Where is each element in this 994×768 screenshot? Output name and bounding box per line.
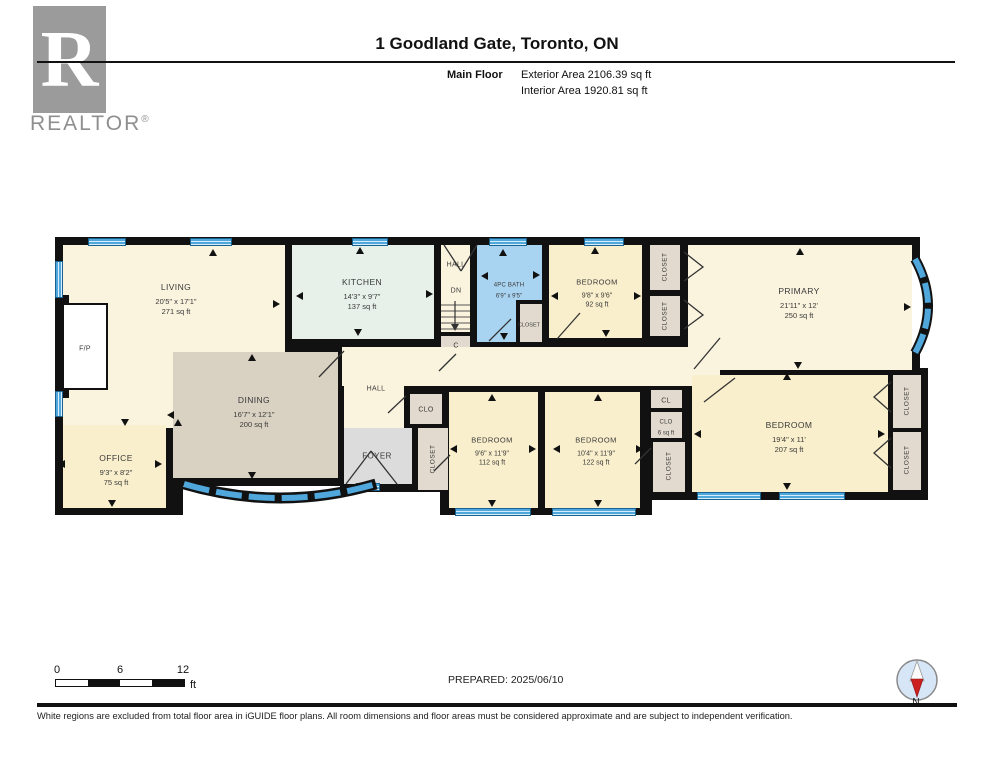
stairs-down [441,300,470,332]
label-closet-bath: CLOSET [518,323,540,329]
label-bath: 4PC BATH 6'9" x 9'5" [494,273,525,302]
label-bedroom-right: BEDROOM 19'4" x 11' 207 sq ft [766,414,813,454]
window-bedroom-top [584,238,624,246]
window-foyer-sidelight [356,483,380,491]
window-bath-top [489,238,527,246]
label-living: LIVING 20'5" x 17'1" 271 sq ft [155,276,196,316]
window-bedroom-b2 [552,508,636,516]
window-left-2 [55,391,63,417]
window-living-top-2 [190,238,232,246]
disclaimer-text: White regions are excluded from total fl… [37,711,967,721]
exterior-area: Exterior Area 2106.39 sq ft [521,69,651,81]
label-closet-mid: CLOSET [666,451,673,480]
page-title: 1 Goodland Gate, Toronto, ON [0,34,994,54]
label-hall-top: HALL [447,262,466,269]
label-closet-foyer: CLOSET [430,444,437,473]
interior-area: Interior Area 1920.81 sq ft [521,85,648,97]
floor-plan-page: R REALTOR® 1 Goodland Gate, Toronto, ON … [0,0,994,768]
label-hall-main: HALL [367,386,386,393]
window-living-top-1 [88,238,126,246]
label-bedroom-b1: BEDROOM 9'6" x 11'9" 112 sq ft [471,429,513,468]
window-kitchen-top [352,238,388,246]
label-foyer: FOYER [362,452,392,461]
window-left-1 [55,261,63,298]
label-clo-hall: CLO [418,407,433,414]
label-closet-r2: CLOSET [904,445,911,474]
window-bedroom-right-1 [697,492,761,500]
realtor-logo: R [33,6,106,113]
scale-unit: ft [190,679,196,691]
label-dining: DINING 16'7" x 12'1" 200 sq ft [233,389,274,429]
prepared-date: PREPARED: 2025/06/10 [448,674,563,686]
label-office: OFFICE 9'3" x 8'2" 75 sq ft [99,447,133,487]
scale-segment [56,680,88,686]
scale-tick-6: 6 [117,664,123,676]
label-closet-r1: CLOSET [904,386,911,415]
label-dn: DN [451,288,462,295]
label-closet-t2: CLOSET [662,301,669,330]
scale-tick-0: 0 [54,664,60,676]
label-bedroom-top: BEDROOM 9'8" x 9'6" 92 sq ft [576,271,618,310]
scale-segment [88,680,120,686]
scale-segment [152,680,184,686]
scale-segment [120,680,152,686]
scale-tick-12: 12 [177,664,189,676]
label-closet-t1: CLOSET [662,252,669,281]
window-bedroom-b1 [455,508,531,516]
bow-window-cutout [183,486,340,518]
scale-bar [55,679,185,687]
window-bedroom-right-2 [779,492,845,500]
label-cl: CL [661,398,671,405]
footer-rule [37,703,957,707]
label-fireplace: F/P [79,346,91,353]
label-closet-c: C [453,343,458,350]
bay-window-opening [912,262,920,348]
room-hall-main [342,347,720,386]
realtor-wordmark: REALTOR® [30,112,151,136]
label-clo6: CLO 6 sq ft [658,410,674,439]
label-kitchen: KITCHEN 14'3" x 9'7" 137 sq ft [342,271,382,311]
realtor-logo-letter: R [41,20,99,100]
label-bedroom-b2: BEDROOM 10'4" x 11'9" 122 sq ft [575,429,617,468]
floor-label: Main Floor [447,69,503,81]
registered-mark: ® [141,114,150,125]
header-rule [37,61,955,63]
label-primary: PRIMARY 21'11" x 12' 250 sq ft [778,280,819,320]
